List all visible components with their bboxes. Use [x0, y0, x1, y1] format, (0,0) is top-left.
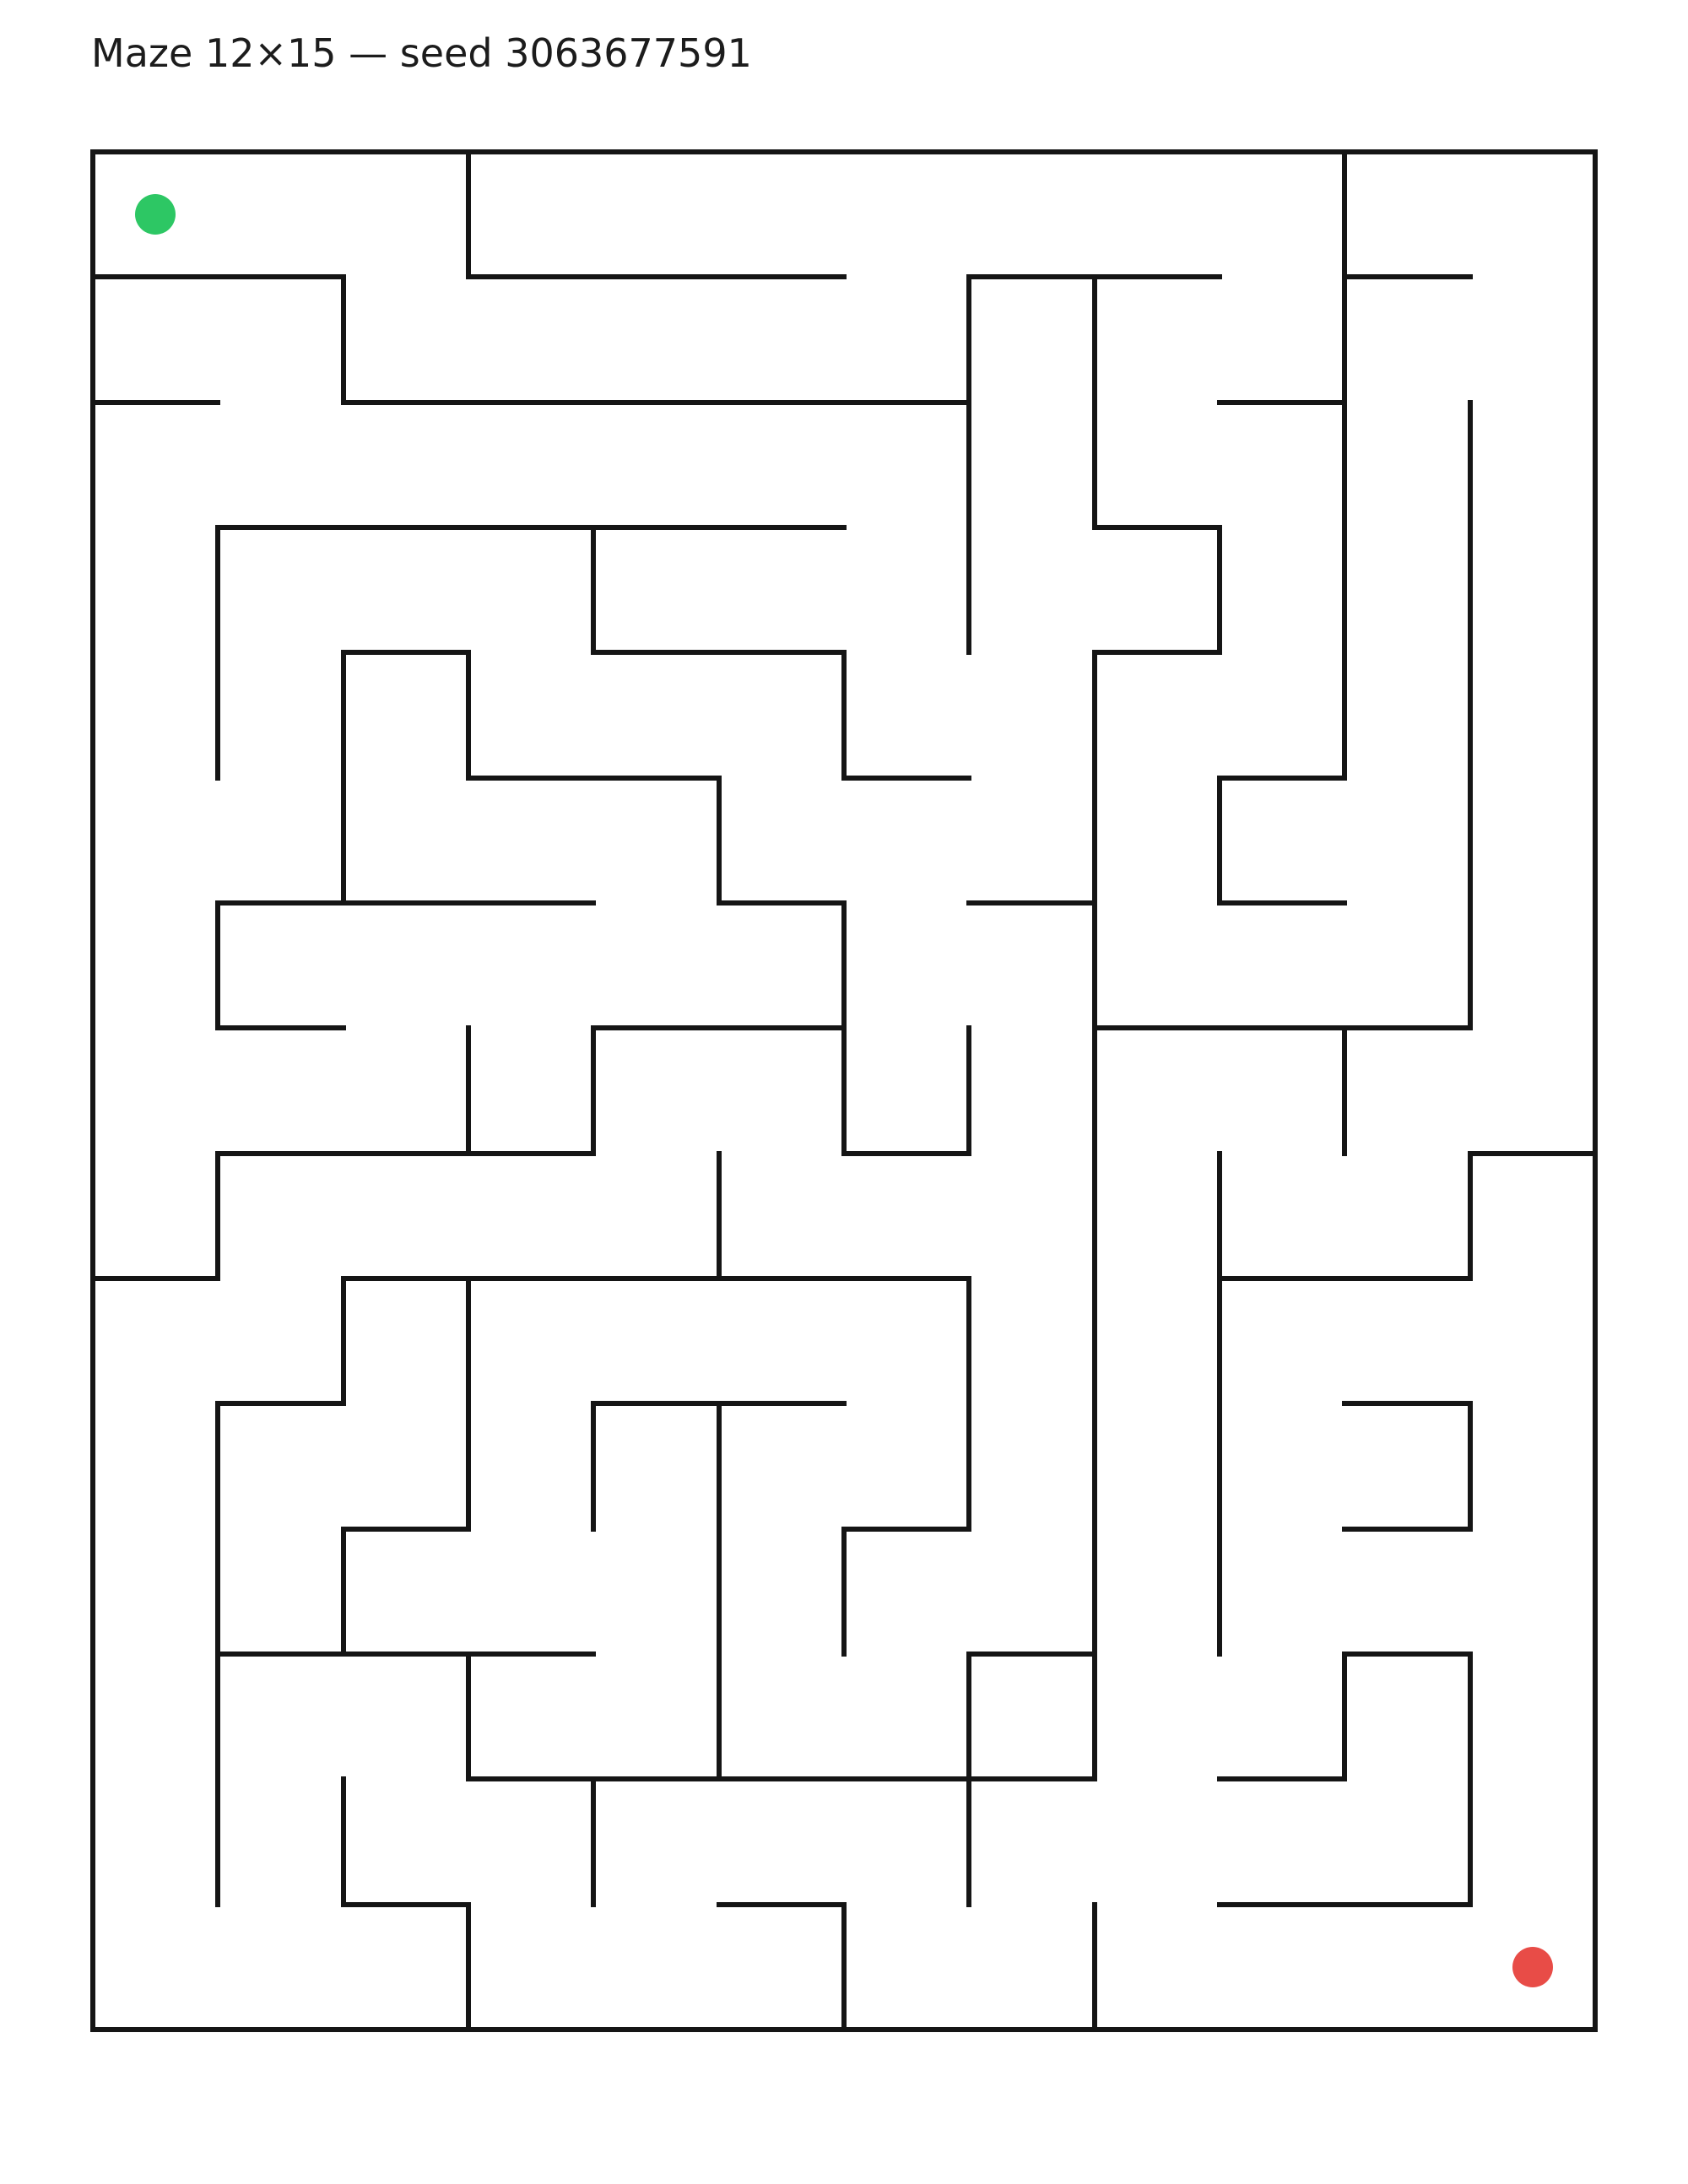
- v-wall-c9-r3: [1217, 525, 1222, 655]
- h-wall-r13-c3: [466, 1776, 1097, 1781]
- v-wall-c4-r3: [591, 525, 596, 655]
- v-wall-c12-r0: [1593, 149, 1598, 2032]
- v-wall-c6-r4: [841, 650, 847, 780]
- v-wall-c4-r13: [591, 1776, 596, 1906]
- v-wall-c8-r14: [1092, 1902, 1097, 2032]
- h-wall-r7-c8: [1092, 1025, 1473, 1030]
- start-dot: [135, 194, 176, 235]
- h-wall-r10-c1: [215, 1401, 345, 1406]
- h-wall-r6-c5: [717, 900, 847, 905]
- v-wall-c6-r6: [841, 900, 847, 1156]
- h-wall-r6-c9: [1217, 900, 1347, 905]
- h-wall-r4-c2: [341, 650, 471, 655]
- v-wall-c1-r8: [215, 1151, 220, 1281]
- v-wall-c1-r10: [215, 1401, 220, 1906]
- v-wall-c2-r11: [341, 1527, 346, 1657]
- v-wall-c11-r2: [1468, 400, 1473, 1031]
- h-wall-r14-c9: [1217, 1902, 1473, 1907]
- v-wall-c7-r12: [966, 1652, 971, 1907]
- h-wall-r10-c10: [1342, 1401, 1472, 1406]
- h-wall-r12-c1: [215, 1652, 596, 1657]
- h-wall-r5-c9: [1217, 776, 1347, 781]
- h-wall-r14-c2: [341, 1902, 471, 1907]
- v-wall-c11-r12: [1468, 1652, 1473, 1907]
- maze-page: Maze 12×15 — seed 3063677591: [0, 0, 1688, 2184]
- h-wall-r9-c0: [90, 1276, 220, 1281]
- v-wall-c3-r12: [466, 1652, 471, 1781]
- v-wall-c10-r12: [1342, 1652, 1347, 1781]
- h-wall-r1-c0: [90, 274, 346, 279]
- v-wall-c10-r7: [1342, 1025, 1347, 1155]
- h-wall-r7-c1: [215, 1025, 345, 1030]
- h-wall-r5-c6: [841, 776, 971, 781]
- v-wall-c8-r4: [1092, 650, 1097, 1781]
- v-wall-c5-r8: [717, 1151, 722, 1281]
- v-wall-c6-r14: [841, 1902, 847, 2032]
- h-wall-r3-c1: [215, 525, 847, 530]
- v-wall-c2-r13: [341, 1776, 346, 1906]
- v-wall-c6-r11: [841, 1527, 847, 1657]
- v-wall-c1-r6: [215, 900, 220, 1030]
- v-wall-c0-r0: [90, 149, 95, 2032]
- h-wall-r14-c5: [717, 1902, 847, 1907]
- v-wall-c11-r10: [1468, 1401, 1473, 1531]
- h-wall-r11-c2: [341, 1527, 471, 1532]
- v-wall-c3-r7: [466, 1025, 471, 1155]
- v-wall-c2-r9: [341, 1276, 346, 1406]
- v-wall-c4-r10: [591, 1401, 596, 1531]
- h-wall-r13-c9: [1217, 1776, 1347, 1781]
- v-wall-c7-r1: [966, 274, 971, 655]
- v-wall-c11-r8: [1468, 1151, 1473, 1281]
- v-wall-c9-r5: [1217, 776, 1222, 905]
- v-wall-c3-r4: [466, 650, 471, 780]
- h-wall-r9-c2: [341, 1276, 972, 1281]
- h-wall-r6-c7: [966, 900, 1096, 905]
- h-wall-r3-c8: [1092, 525, 1222, 530]
- v-wall-c8-r1: [1092, 274, 1097, 530]
- h-wall-r8-c1: [215, 1151, 596, 1156]
- h-wall-r0-c0: [90, 149, 1598, 154]
- h-wall-r6-c1: [215, 900, 596, 905]
- maze-title: Maze 12×15 — seed 3063677591: [91, 30, 752, 76]
- v-wall-c3-r14: [466, 1902, 471, 2032]
- h-wall-r5-c3: [466, 776, 722, 781]
- h-wall-r9-c9: [1217, 1276, 1473, 1281]
- end-dot: [1512, 1947, 1553, 1987]
- h-wall-r2-c2: [341, 400, 972, 405]
- h-wall-r1-c10: [1342, 274, 1472, 279]
- h-wall-r4-c4: [591, 650, 847, 655]
- h-wall-r11-c10: [1342, 1527, 1472, 1532]
- h-wall-r8-c11: [1468, 1151, 1598, 1156]
- v-wall-c10-r0: [1342, 149, 1347, 781]
- v-wall-c4-r7: [591, 1025, 596, 1155]
- v-wall-c1-r3: [215, 525, 220, 781]
- h-wall-r8-c6: [841, 1151, 971, 1156]
- v-wall-c7-r7: [966, 1025, 971, 1155]
- h-wall-r1-c3: [466, 274, 847, 279]
- h-wall-r7-c4: [591, 1025, 847, 1030]
- h-wall-r4-c8: [1092, 650, 1222, 655]
- v-wall-c2-r4: [341, 650, 346, 905]
- v-wall-c5-r5: [717, 776, 722, 905]
- v-wall-c9-r8: [1217, 1151, 1222, 1657]
- v-wall-c3-r0: [466, 149, 471, 279]
- v-wall-c2-r1: [341, 274, 346, 404]
- v-wall-c7-r9: [966, 1276, 971, 1532]
- h-wall-r11-c6: [841, 1527, 971, 1532]
- h-wall-r2-c0: [90, 400, 220, 405]
- h-wall-r12-c10: [1342, 1652, 1472, 1657]
- h-wall-r12-c7: [966, 1652, 1096, 1657]
- h-wall-r2-c9: [1217, 400, 1347, 405]
- v-wall-c5-r10: [717, 1401, 722, 1781]
- v-wall-c3-r9: [466, 1276, 471, 1532]
